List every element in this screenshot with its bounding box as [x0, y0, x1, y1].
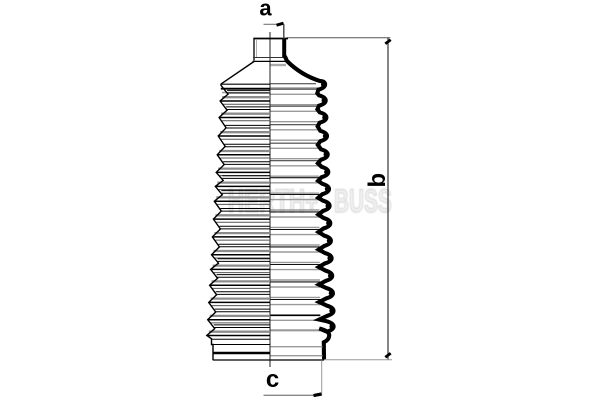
svg-text:BUSS: BUSS: [334, 184, 392, 220]
svg-text:a: a: [259, 0, 272, 21]
svg-text:c: c: [266, 366, 279, 393]
svg-text:b: b: [364, 173, 391, 188]
